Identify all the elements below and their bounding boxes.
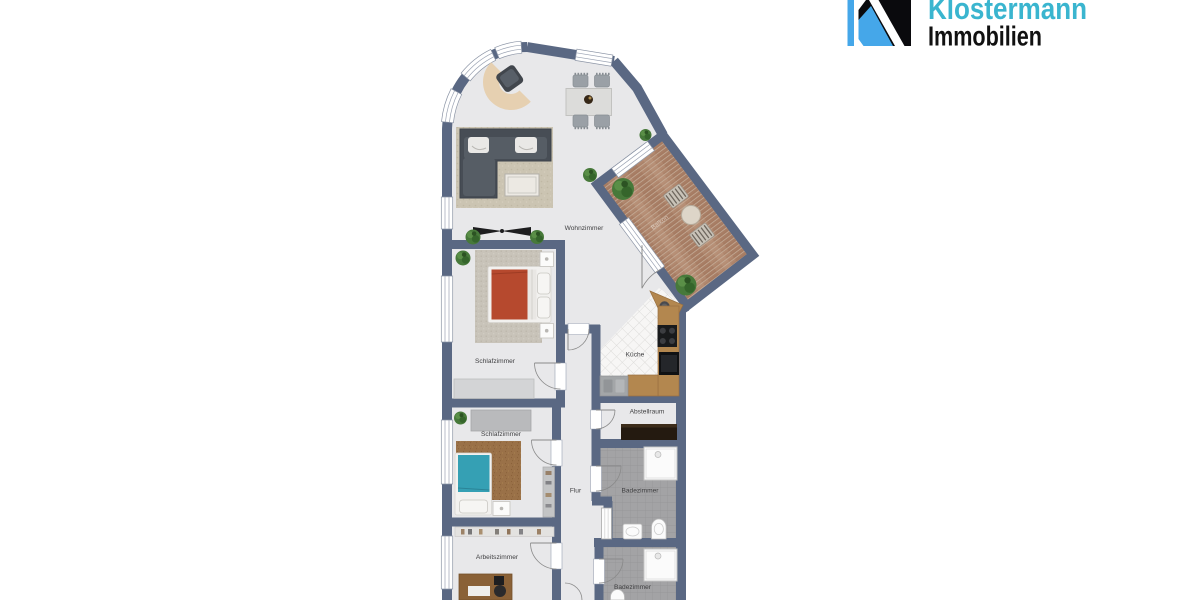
svg-text:Abstellraum: Abstellraum: [630, 409, 665, 416]
svg-text:Arbeitszimmer: Arbeitszimmer: [476, 554, 519, 561]
svg-text:Flur: Flur: [570, 488, 582, 495]
svg-text:Küche: Küche: [626, 352, 645, 359]
svg-text:Badezimmer: Badezimmer: [614, 584, 652, 591]
svg-text:Schlafzimmer: Schlafzimmer: [475, 358, 516, 365]
svg-text:Immobilien: Immobilien: [928, 20, 1042, 51]
svg-text:Badezimmer: Badezimmer: [621, 488, 659, 495]
svg-text:Schlafzimmer: Schlafzimmer: [481, 431, 522, 438]
svg-text:Wohnzimmer: Wohnzimmer: [565, 225, 605, 232]
